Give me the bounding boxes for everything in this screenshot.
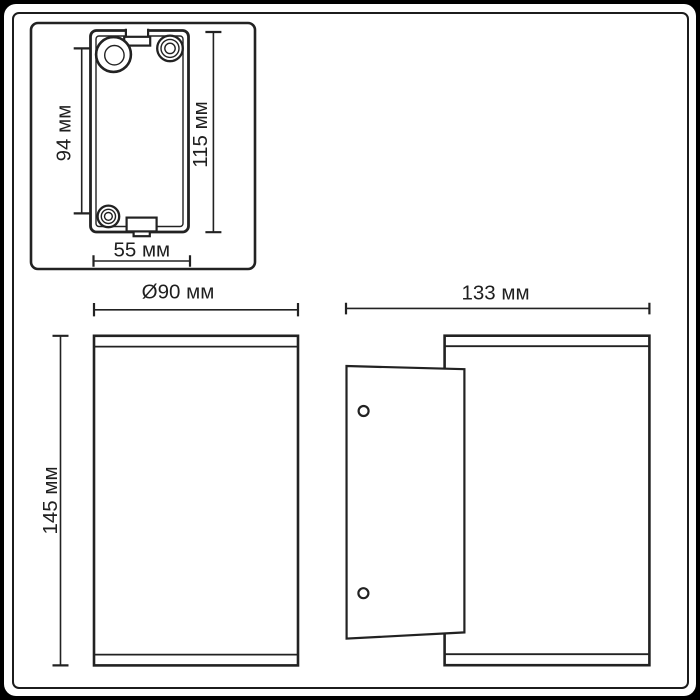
dim-label-55mm: 55 мм (113, 239, 170, 262)
cable-gland-outer-circle (96, 37, 131, 72)
front-view: Ø90 мм 145 мм (39, 281, 298, 666)
lamp-technical-drawing: 94 мм 115 мм 55 мм Ø90 мм 145 мм (0, 0, 700, 700)
dim-label-115mm: 115 мм (189, 101, 212, 168)
dimension-diameter-90mm: Ø90 мм (94, 281, 298, 317)
side-body-outline (445, 336, 650, 666)
screw-hole-bottom-left (98, 206, 120, 228)
detail-inset-view: 94 мм 115 мм 55 мм (31, 23, 255, 269)
dimension-145mm: 145 мм (39, 336, 69, 666)
dim-label-145mm: 145 мм (39, 466, 62, 534)
dim-label-94mm: 94 мм (53, 105, 76, 162)
bottom-tab (127, 218, 157, 232)
side-view: 133 мм (346, 281, 649, 665)
dimension-133mm: 133 мм (346, 281, 649, 314)
front-body-outline (94, 336, 298, 666)
dim-label-133mm: 133 мм (461, 281, 529, 304)
screw-hole-top-right (157, 36, 183, 62)
dim-label-diameter-90mm: Ø90 мм (142, 281, 215, 304)
